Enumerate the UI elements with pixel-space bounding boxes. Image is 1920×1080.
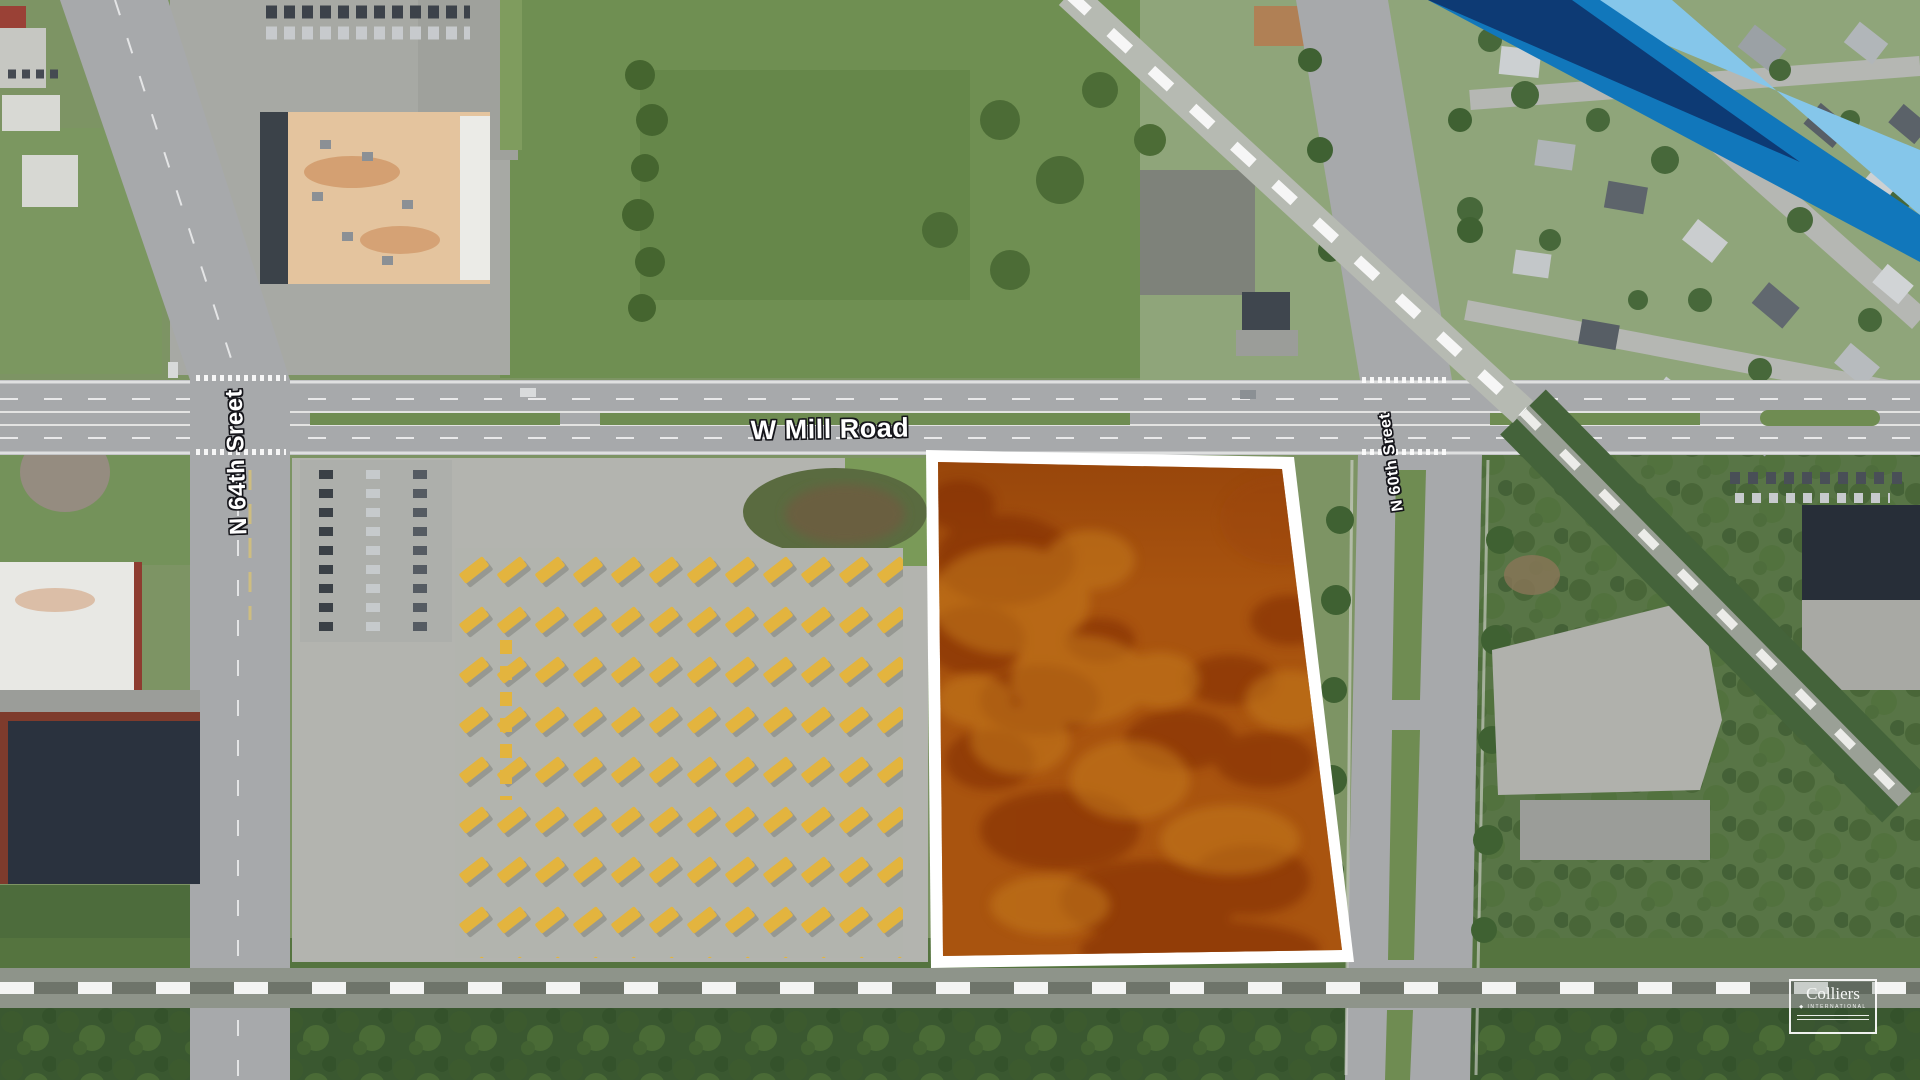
dark-industrial-building <box>1802 505 1920 601</box>
red-roof-building <box>0 6 26 28</box>
logo-diamond-icon: ◆ <box>1799 1004 1804 1010</box>
aerial-map: W Mill Road N 64th Sreet N 60th Sreet Co… <box>0 0 1920 1080</box>
small-dark-building <box>1242 292 1290 330</box>
street-label-w-mill-road: W Mill Road <box>700 412 961 448</box>
colliers-logo: Colliers ◆ INTERNATIONAL <box>1789 979 1877 1034</box>
small-white-building <box>22 155 78 207</box>
colliers-logo-division: ◆ INTERNATIONAL <box>1791 1004 1875 1010</box>
dark-store-building <box>0 712 200 884</box>
colliers-logo-brand: Colliers <box>1791 985 1875 1003</box>
street-label-n-64th-street: N 64th Sreet <box>220 389 253 536</box>
horizontal-railroad <box>0 968 1920 1008</box>
school-bus-rows <box>455 548 903 958</box>
highlighted-parcel <box>920 445 1365 980</box>
logo-rule-top <box>1797 1015 1869 1016</box>
white-store-building <box>0 562 142 690</box>
logo-rule-bottom <box>1797 1019 1869 1020</box>
gravel-lot <box>1140 170 1255 295</box>
tan-roof-building <box>260 112 490 284</box>
aerial-imagery <box>0 0 1920 1080</box>
